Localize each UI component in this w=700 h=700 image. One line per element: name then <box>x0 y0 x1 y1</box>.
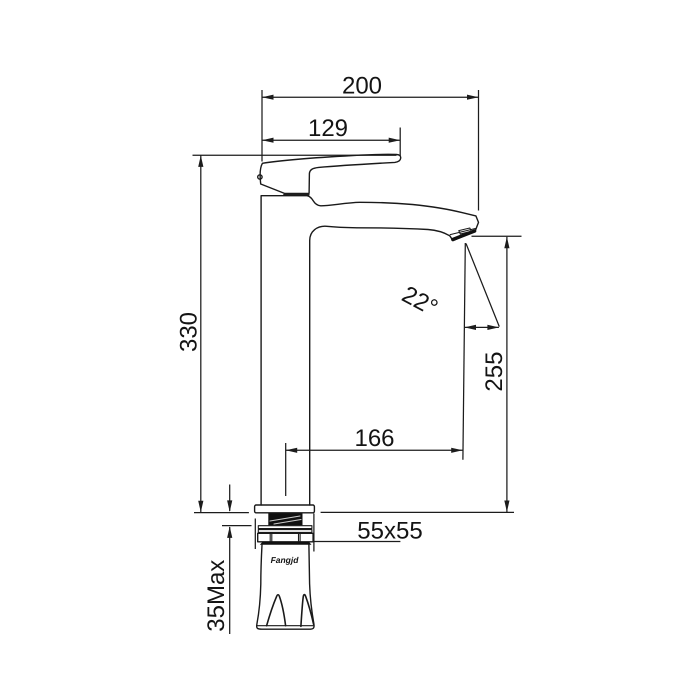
svg-text:129: 129 <box>308 115 348 142</box>
svg-text:35Max: 35Max <box>203 560 230 632</box>
svg-text:200: 200 <box>342 73 382 100</box>
svg-text:166: 166 <box>354 425 394 452</box>
svg-text:Fangjd: Fangjd <box>271 555 300 565</box>
svg-text:55x55: 55x55 <box>357 518 422 545</box>
svg-text:330: 330 <box>175 312 202 352</box>
svg-text:255: 255 <box>481 352 508 392</box>
svg-text:22°: 22° <box>397 281 442 322</box>
